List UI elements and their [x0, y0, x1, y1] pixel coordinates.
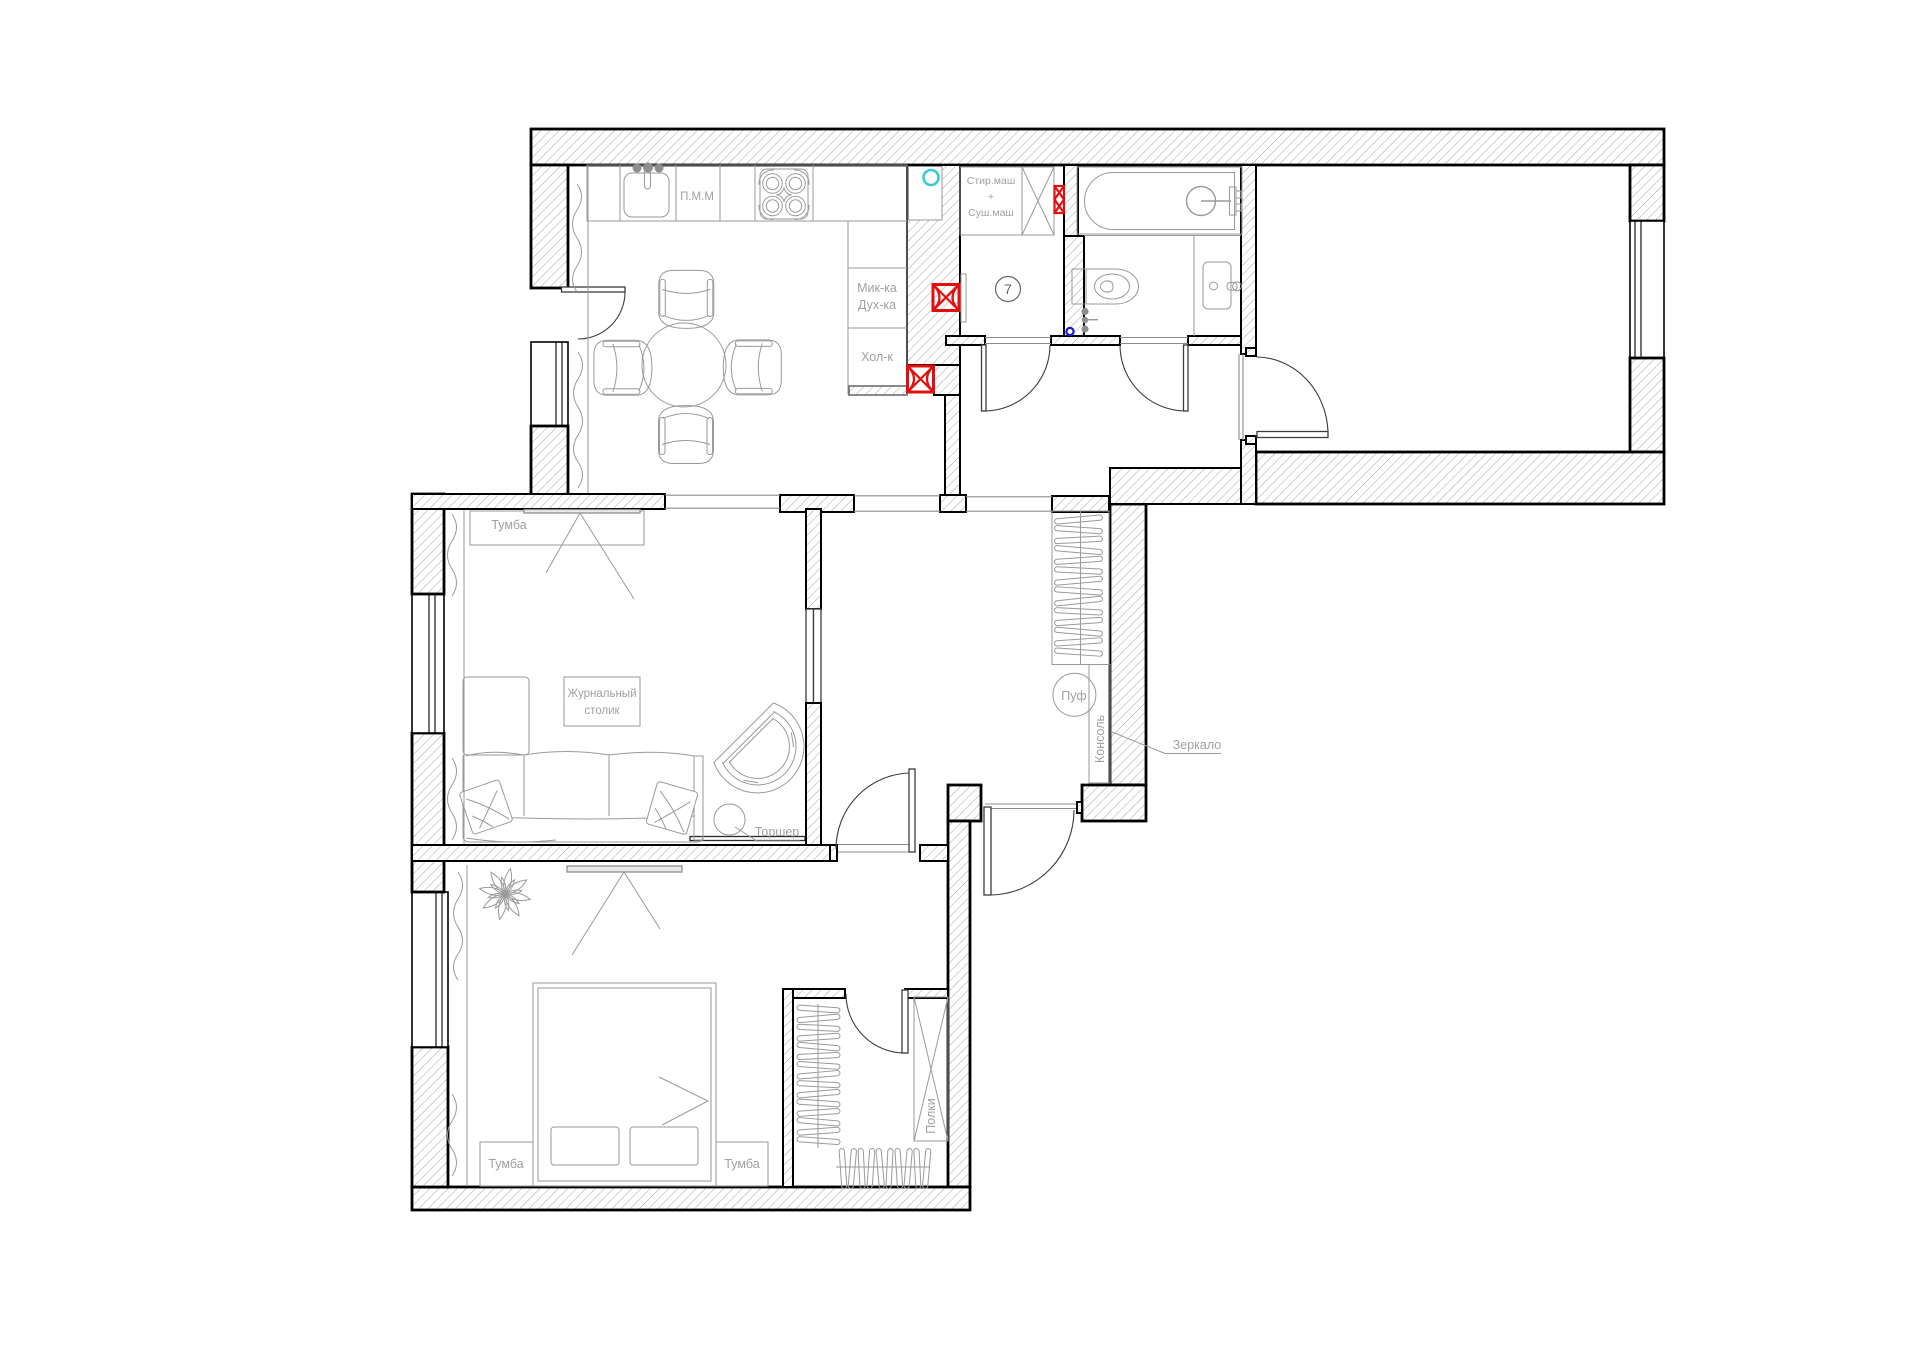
svg-text:Зеркало: Зеркало [1173, 738, 1222, 752]
svg-text:Дух-ка: Дух-ка [858, 298, 896, 312]
svg-text:Тумба: Тумба [491, 518, 526, 532]
svg-text:Журнальный: Журнальный [568, 688, 637, 700]
svg-text:Торшер: Торшер [755, 825, 800, 839]
svg-text:Стир.маш: Стир.маш [967, 175, 1016, 187]
svg-text:Суш.маш: Суш.маш [968, 207, 1014, 219]
svg-text:Пуф: Пуф [1061, 689, 1086, 703]
svg-text:Тумба: Тумба [724, 1157, 759, 1171]
svg-text:Хол-к: Хол-к [861, 350, 893, 364]
svg-text:столик: столик [584, 705, 620, 717]
svg-text:Консоль: Консоль [1093, 715, 1107, 763]
svg-text:Тумба: Тумба [488, 1157, 523, 1171]
svg-text:+: + [988, 191, 994, 203]
svg-text:П.М.М: П.М.М [680, 191, 714, 203]
svg-text:Полки: Полки [924, 1098, 938, 1133]
svg-text:7: 7 [1004, 281, 1012, 297]
svg-text:Мик-ка: Мик-ка [857, 281, 897, 295]
